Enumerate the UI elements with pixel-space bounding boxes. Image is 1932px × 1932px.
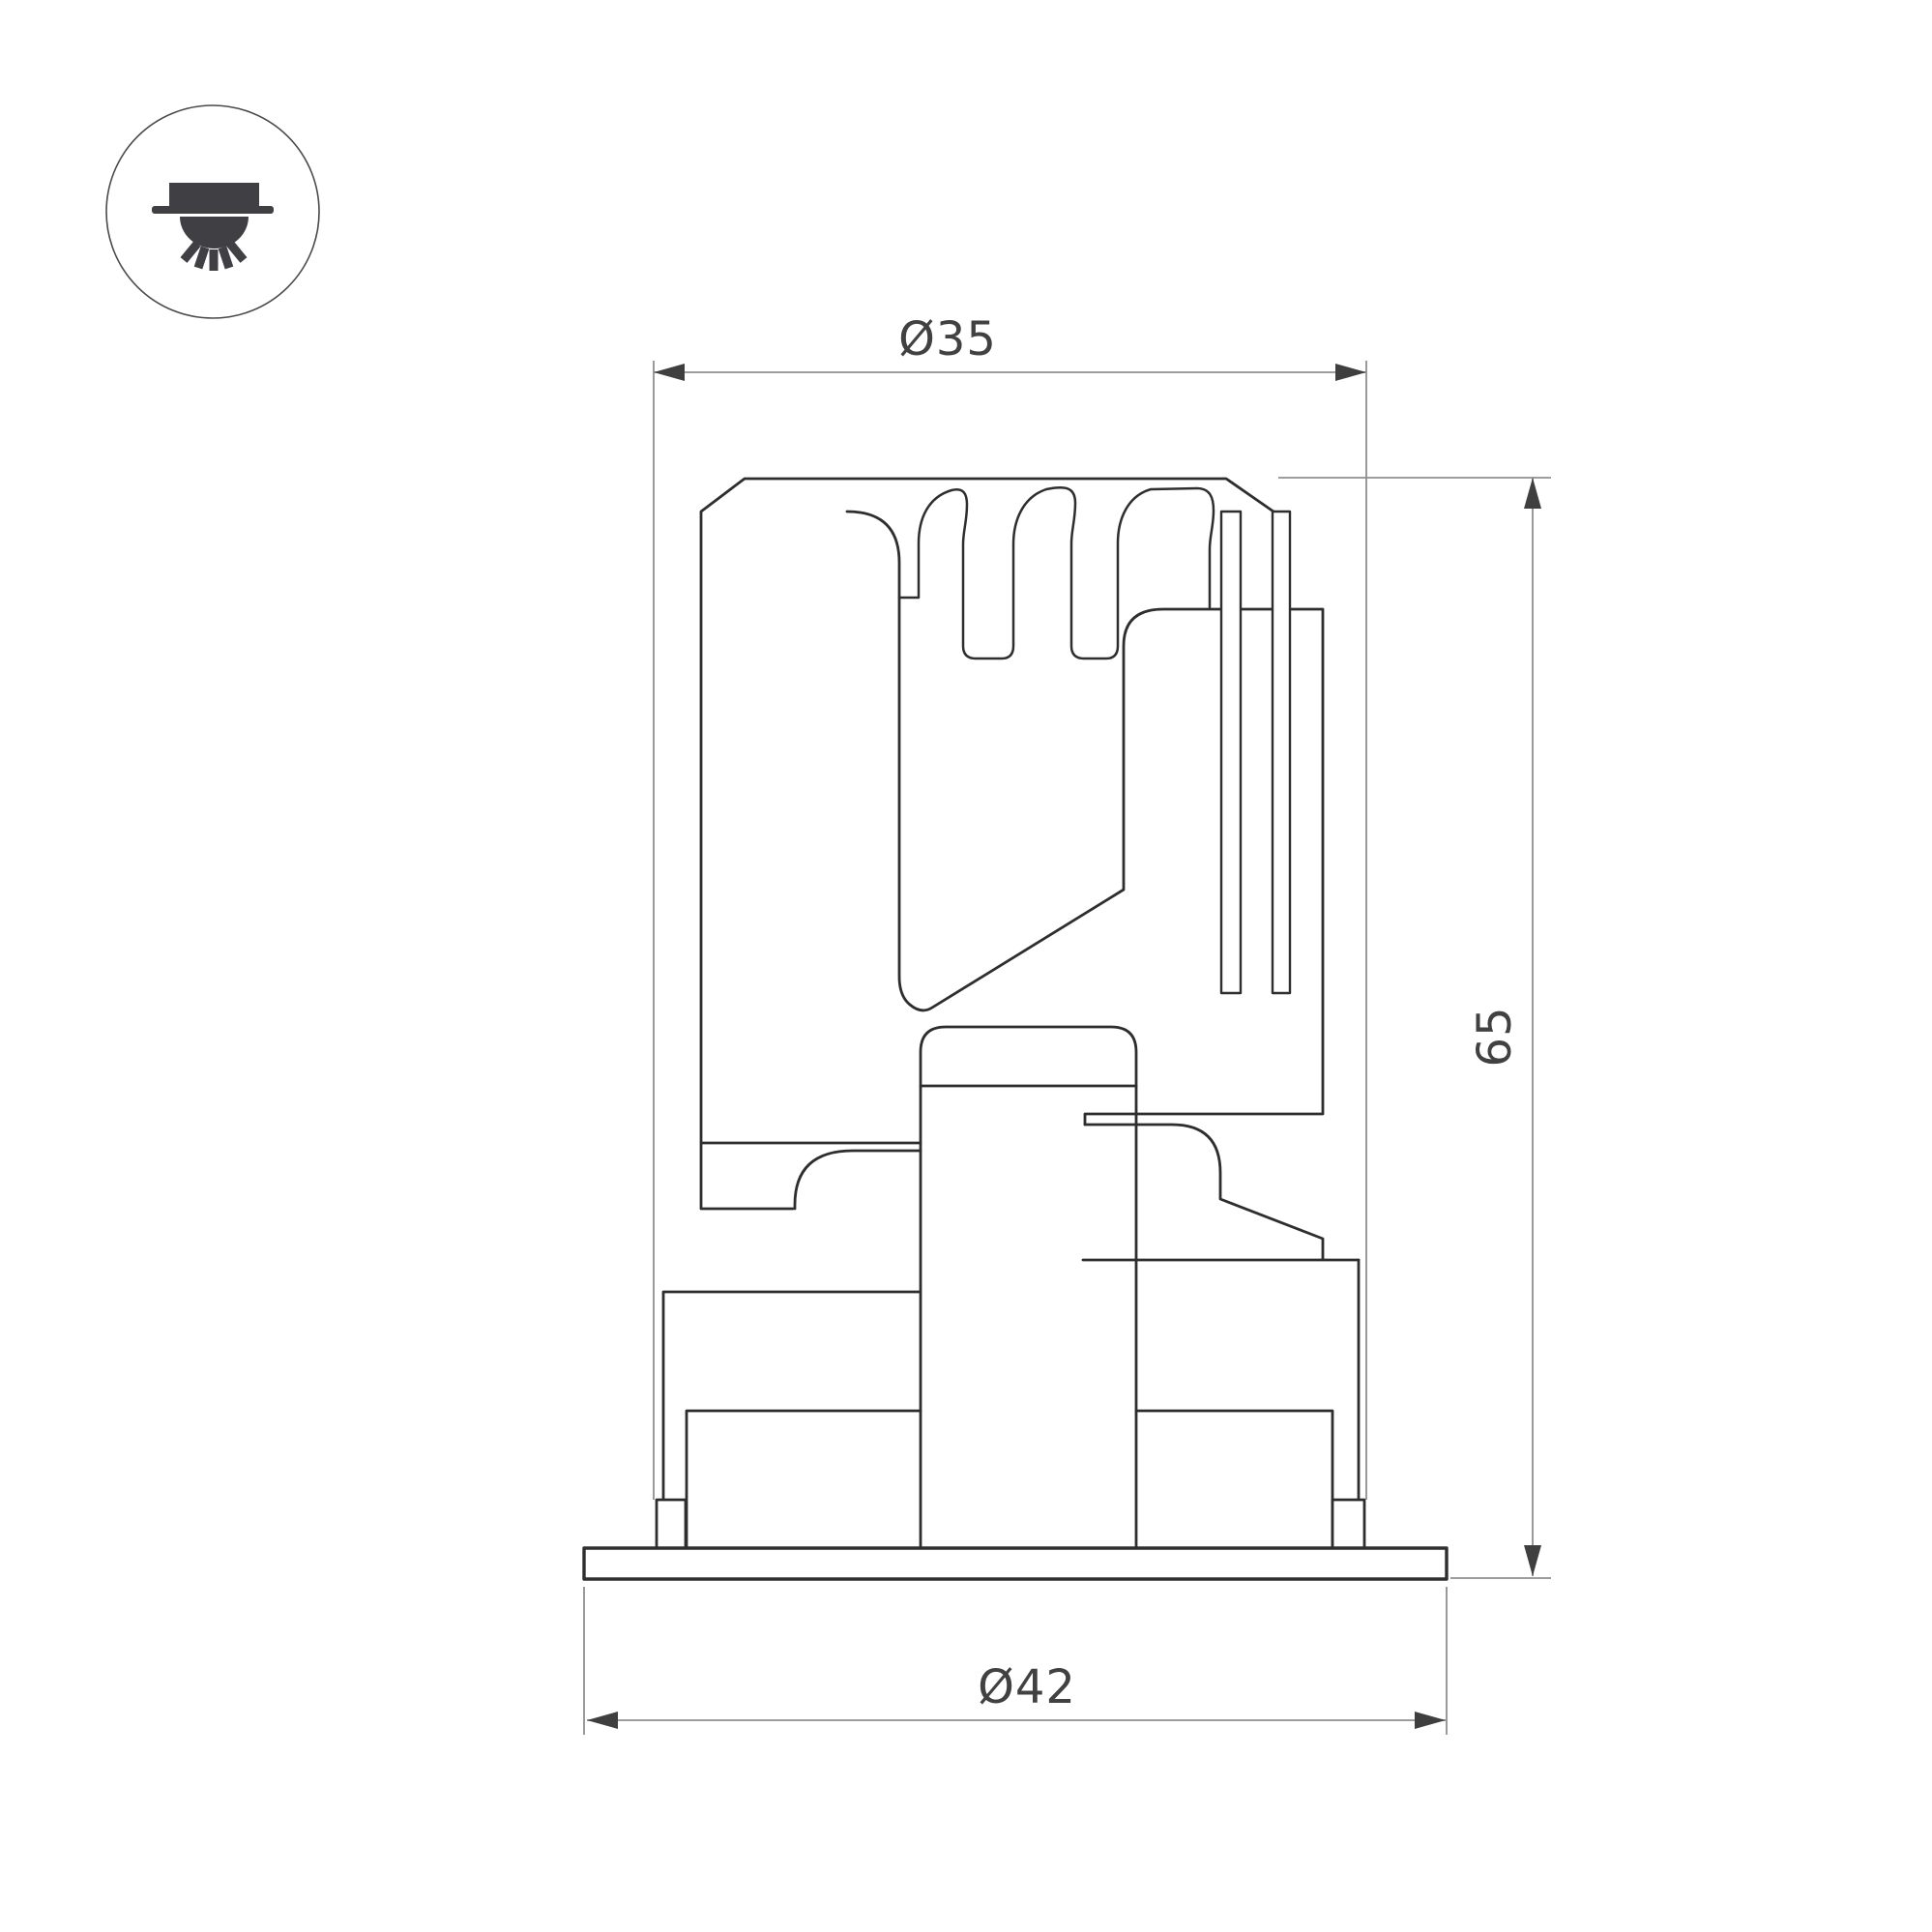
stem-body	[921, 1086, 1136, 1548]
mounting-foot-left	[657, 1500, 686, 1548]
trim-ring-inner	[687, 1411, 1332, 1548]
dim-label-top-diameter: Ø35	[898, 312, 997, 366]
dim-label-bottom-diameter: Ø42	[978, 1660, 1076, 1714]
recessed-downlight-icon	[106, 105, 319, 318]
arrowhead-left	[587, 1712, 618, 1729]
heatsink-outline	[701, 479, 1273, 1209]
technical-drawing-svg: Ø35 65 Ø42	[0, 0, 1932, 1932]
arrowhead-bottom	[1524, 1545, 1541, 1576]
stem-cap	[921, 1027, 1136, 1086]
contact-pin-right	[1273, 512, 1290, 993]
icon-ceiling-bar	[152, 206, 274, 214]
flange-plate	[584, 1548, 1447, 1579]
heatsink-fins	[899, 487, 1214, 659]
spring-bracket-left	[795, 1151, 921, 1209]
arrowhead-left	[654, 364, 685, 381]
contact-pin-left	[1221, 512, 1241, 993]
arrowhead-right	[1335, 364, 1366, 381]
drawing-page: Ø35 65 Ø42	[0, 0, 1932, 1932]
icon-lamp-body	[169, 183, 259, 208]
arrowhead-right	[1415, 1712, 1446, 1729]
dim-top-diameter	[654, 361, 1366, 1500]
trim-ring-outer	[663, 1260, 1359, 1500]
dim-label-height: 65	[1468, 1006, 1522, 1067]
mounting-foot-right	[1332, 1500, 1364, 1548]
arrowhead-top	[1524, 478, 1541, 509]
luminaire-cross-section	[584, 479, 1447, 1579]
spring-bracket-right	[1083, 1125, 1359, 1260]
